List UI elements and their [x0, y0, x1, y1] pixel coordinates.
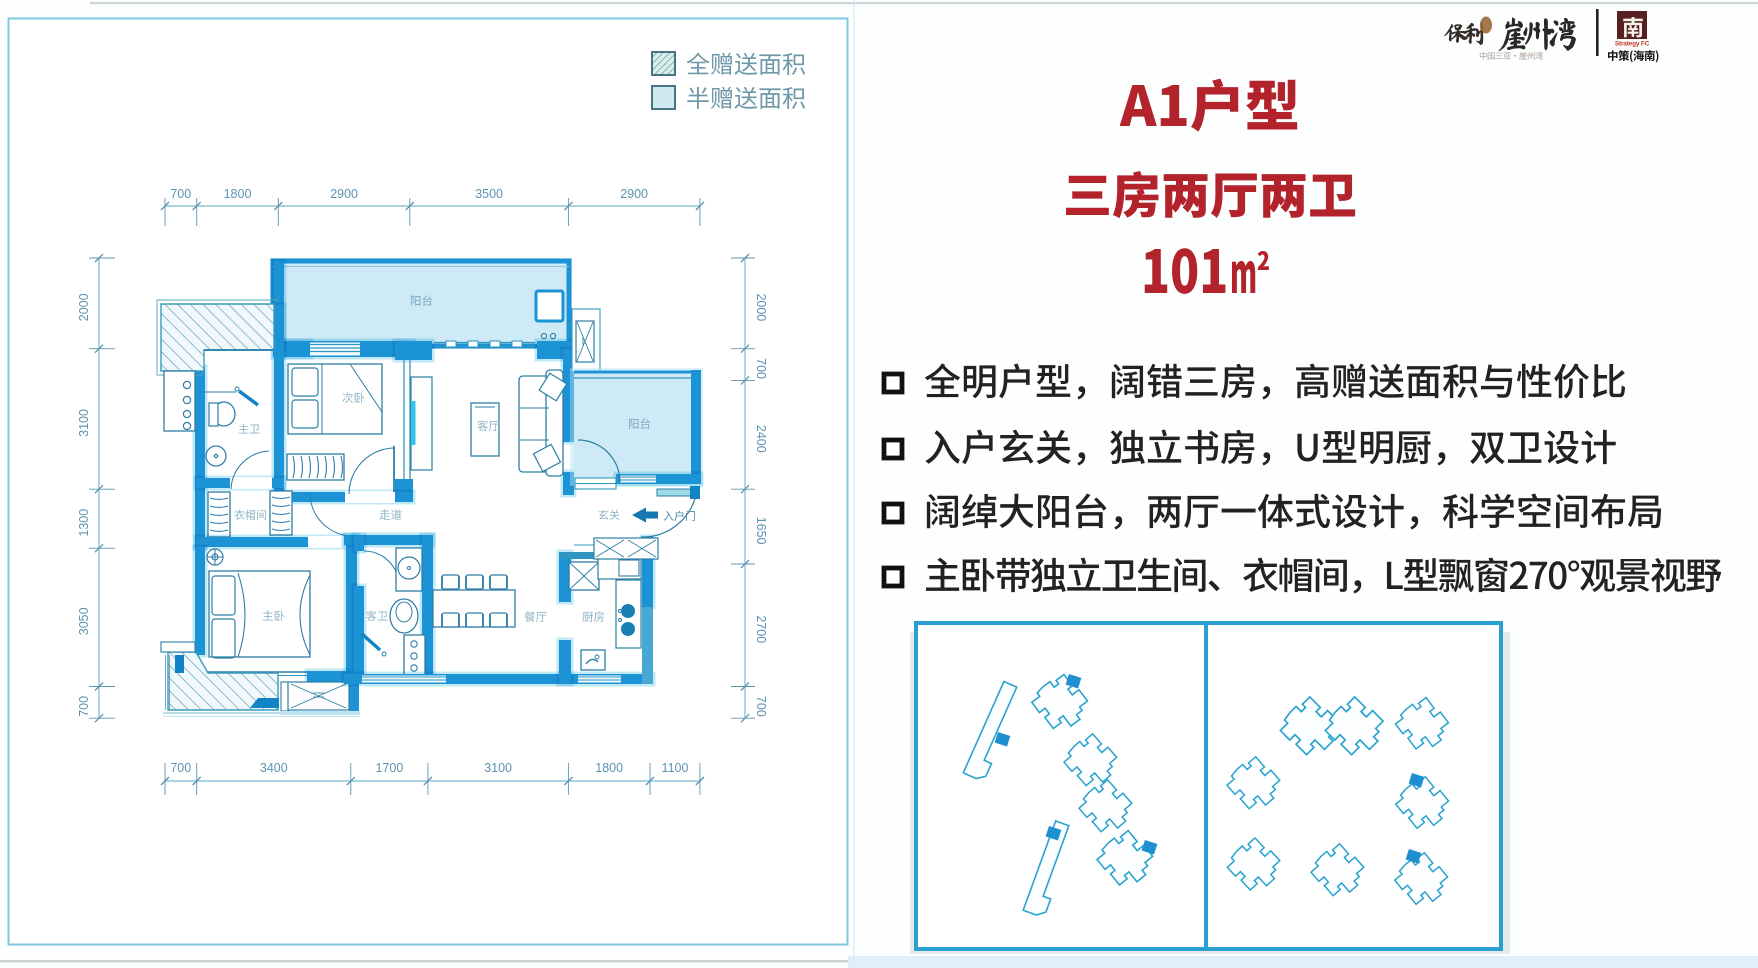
svg-text:700: 700 [170, 187, 191, 201]
svg-text:1800: 1800 [224, 187, 252, 201]
svg-text:1650: 1650 [754, 517, 768, 545]
svg-text:2400: 2400 [754, 425, 768, 453]
svg-text:2000: 2000 [77, 293, 91, 321]
svg-text:700: 700 [170, 761, 191, 775]
svg-text:1300: 1300 [77, 509, 91, 537]
svg-text:3100: 3100 [77, 409, 91, 437]
svg-text:2900: 2900 [620, 187, 648, 201]
svg-text:1800: 1800 [595, 761, 623, 775]
svg-text:700: 700 [77, 696, 91, 717]
svg-text:2700: 2700 [754, 615, 768, 643]
svg-text:700: 700 [754, 358, 768, 379]
svg-text:Strategy FC: Strategy FC [1615, 41, 1650, 48]
svg-text:3100: 3100 [484, 761, 512, 775]
svg-text:1700: 1700 [375, 761, 403, 775]
svg-text:2900: 2900 [330, 187, 358, 201]
svg-text:2000: 2000 [754, 293, 768, 321]
svg-text:3400: 3400 [260, 761, 288, 775]
svg-text:3050: 3050 [77, 607, 91, 635]
svg-text:700: 700 [754, 696, 768, 717]
svg-text:1100: 1100 [662, 761, 689, 775]
svg-text:3500: 3500 [475, 187, 503, 201]
